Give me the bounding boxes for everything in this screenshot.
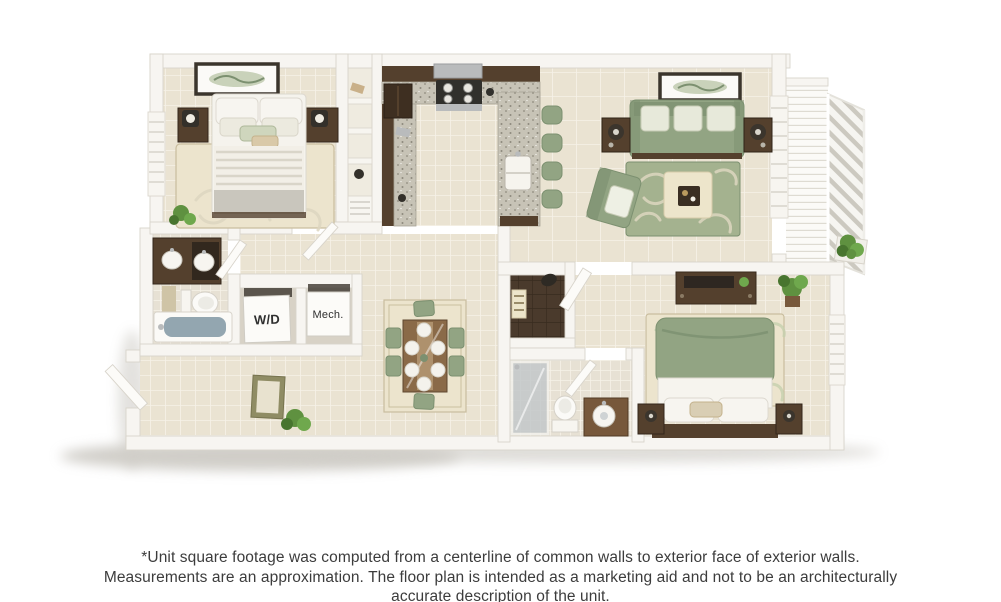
- wall-closet-kitchen: [372, 54, 382, 222]
- ottoman-coffee-table: [664, 172, 712, 218]
- dresser-plant: [739, 277, 749, 287]
- shower-head: [515, 365, 520, 370]
- wall-hall-east: [498, 222, 510, 442]
- tv: [684, 276, 734, 288]
- tub-faucet: [158, 324, 164, 330]
- tray: [678, 186, 700, 206]
- nightstand-1-right: [306, 108, 338, 142]
- living-room-sliding-door: [770, 96, 788, 218]
- sink: [162, 251, 182, 269]
- wall-west-upper: [150, 54, 163, 112]
- disclaimer-text: *Unit square footage was computed from a…: [98, 548, 903, 602]
- kitchen-counter-west: [394, 104, 416, 226]
- accent-pillow: [690, 402, 722, 417]
- bathroom-2-vanity: [584, 398, 628, 436]
- sink: [194, 253, 214, 271]
- centerpiece: [420, 354, 428, 362]
- dining-area: [384, 300, 466, 412]
- washer-dryer-label: W/D: [254, 312, 281, 328]
- faucet: [515, 151, 521, 157]
- sofa: [630, 100, 744, 159]
- wall-west-mid: [140, 228, 153, 356]
- floor-plan-rendering: W/D Mech.: [0, 0, 1001, 540]
- mechanical-label: Mech.: [313, 309, 344, 321]
- wall-art-frame-2: [660, 74, 740, 100]
- wall-south: [126, 436, 844, 450]
- nightstand-2-left: [638, 404, 664, 434]
- corridor-floor: [240, 234, 362, 278]
- bathtub: [154, 312, 232, 342]
- kettle: [486, 88, 494, 96]
- wall-bath2-north-a: [510, 348, 585, 360]
- range-stove: [434, 64, 482, 111]
- bedroom-2-window: [829, 315, 845, 385]
- laundry-niche-divider: [296, 288, 306, 346]
- toilet-2: [552, 396, 578, 432]
- mechanical-unit: Mech.: [307, 292, 350, 336]
- entry-mat: [251, 375, 285, 419]
- washer-dryer-unit: W/D: [243, 295, 291, 343]
- sofa-pillow: [674, 106, 702, 131]
- wall-bedroom1-south-b: [332, 222, 382, 234]
- balcony-deck: [786, 84, 828, 262]
- bathroom-1-vanity: [153, 238, 221, 284]
- sofa-pillow: [641, 106, 669, 131]
- end-table-right: [744, 118, 772, 152]
- balcony: [786, 78, 868, 274]
- wall-bedroom2-north-a: [498, 262, 575, 275]
- bath-mat: [162, 286, 176, 314]
- nightstand-1-left: [178, 108, 208, 142]
- pillow: [718, 398, 768, 422]
- dresser: [676, 272, 756, 304]
- linen-shelf: [348, 196, 372, 222]
- table-lamp: [186, 114, 195, 123]
- headboard: [652, 424, 778, 438]
- footboard: [212, 212, 306, 218]
- wall-art-frame-1: [196, 64, 278, 94]
- bedroom-1-window: [148, 112, 165, 196]
- wall-foyer-north: [140, 344, 362, 356]
- nightstand-2-right: [776, 404, 802, 434]
- floor-plan-page: W/D Mech.: [0, 0, 1001, 602]
- wall-west-lower: [126, 350, 140, 362]
- wall-closet2-south: [510, 338, 575, 348]
- foot-blanket: [214, 190, 304, 214]
- sofa-pillow: [707, 106, 735, 131]
- queen-bed-1: [212, 94, 306, 218]
- table-lamp: [315, 114, 324, 123]
- end-table-left: [602, 118, 630, 152]
- foyer-floor: [140, 356, 362, 436]
- shower: [512, 362, 548, 434]
- kitchen-peninsula: [498, 92, 540, 226]
